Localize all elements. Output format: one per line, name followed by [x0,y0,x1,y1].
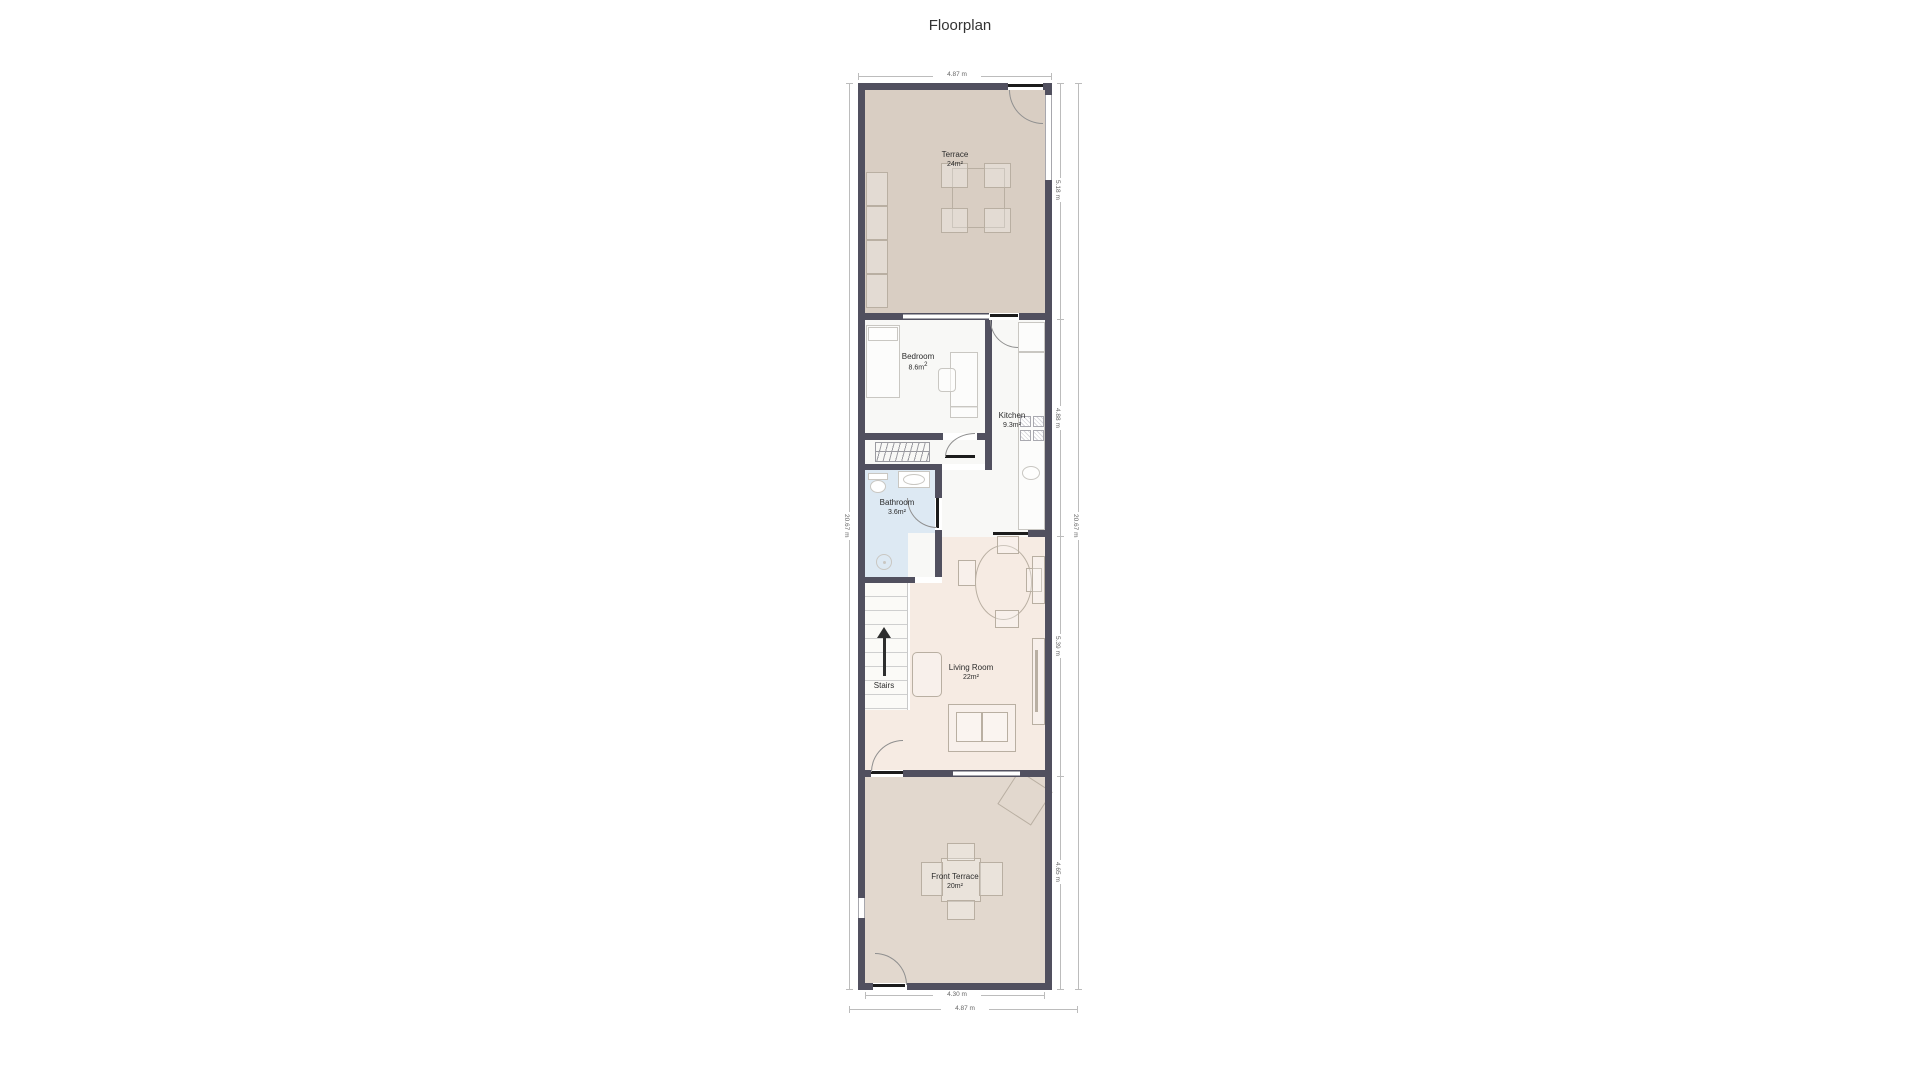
wall-left [858,83,865,990]
dim-tick [1075,989,1082,990]
terrace-chair [984,208,1011,233]
wall-right [1045,83,1052,990]
dining-chair [958,560,976,586]
dim-label-right-seg-2: 5.39 m [1054,634,1061,658]
dim-tick [858,73,859,80]
dim-label-left-height: 20.67 m [843,512,850,540]
room-area: 8.6m2 [868,362,968,372]
stairs-label: Stairs [854,681,914,691]
terrace-sofa-module [866,240,888,274]
terrace-chair [941,208,968,233]
room-name: Stairs [854,681,914,691]
dim-tick [1077,1006,1078,1013]
terrace-sofa-module [866,206,888,240]
front-terrace-label: Front Terrace 20m² [905,872,1005,891]
sofa-cushion [982,712,1008,742]
bed-pillow [868,327,898,341]
room-area: 9.3m² [972,421,1052,430]
dim-tick [1057,989,1064,990]
door-leaf-kitchen-living [993,532,1028,535]
toilet-bowl [870,480,886,493]
dim-tick [1057,776,1064,777]
dim-label-right-seg-0: 5.18 m [1054,178,1061,202]
dim-label-bottom-inner: 4.30 m [933,991,981,998]
terrace-sofa-module [866,274,888,308]
dim-tick [1044,992,1045,999]
dining-table [975,545,1032,620]
dim-tick [1051,73,1052,80]
sideboard [1032,556,1045,604]
bathroom-label: Bathroom 3.6m² [857,498,937,517]
dining-chair [995,610,1019,628]
door-leaf-terrace-kitchen [990,314,1018,317]
room-name: Bedroom [868,352,968,362]
dim-tick [1075,83,1082,84]
dim-tick [865,992,866,999]
dim-label-top-width: 4.87 m [933,71,981,78]
kitchen-sink [1022,466,1040,480]
terrace-label: Terrace 24m² [905,150,1005,169]
room-area: 20m² [905,882,1005,891]
kitchen-counter-top [1018,322,1045,352]
dim-label-right-seg-1: 4.88 m [1054,406,1061,430]
dim-tick [1057,83,1064,84]
room-name: Bathroom [857,498,937,508]
bathroom-sink-basin [903,474,925,485]
sofa-cushion [956,712,982,742]
stove-burner [1020,430,1031,441]
floorplan-page: Floorplan [0,0,1920,1080]
door-leaf-terrace-top [1008,84,1043,87]
room-area: 24m² [905,160,1005,169]
shower-drain-dot [883,561,886,564]
window-terrace-bedroom [903,314,989,319]
room-area: 22m² [921,673,1021,682]
kitchen-label: Kitchen 9.3m² [972,411,1052,430]
tv-unit [1032,638,1045,725]
window-terrace-right [1045,95,1052,180]
front-terrace-chair [947,843,975,861]
kitchen-counter-right [1018,352,1045,530]
front-terrace-chair [947,900,975,920]
stove-burner [1033,430,1044,441]
dim-tick [846,83,853,84]
bedroom-label: Bedroom 8.6m2 [868,352,968,373]
wardrobe-hangers [875,442,930,462]
terrace-sofa-module [866,172,888,206]
dim-tick [1057,536,1064,537]
wardrobe-rail [875,451,930,452]
room-name: Living Room [921,663,1021,673]
wall-closet-bottom [865,464,942,470]
glass-door-living [953,771,1020,776]
hall-floor [908,533,935,577]
stairs-arrow-head [877,627,891,638]
dim-label-bottom-outer: 4.87 m [941,1005,989,1012]
stairs-direction-arrow [883,637,886,676]
room-name: Terrace [905,150,1005,160]
room-name: Kitchen [972,411,1052,421]
page-title: Floorplan [0,17,1920,34]
room-name: Front Terrace [905,872,1005,882]
dim-tick [849,1006,850,1013]
room-area: 3.6m² [857,508,937,517]
living-room-label: Living Room 22m² [921,663,1021,682]
tv-screen [1035,650,1038,712]
window-frontterrace-left [858,898,865,918]
wall-bedroom-kitchen [985,313,992,470]
dim-label-right-total: 20.67 m [1072,512,1079,540]
wall-kitchen-living-stub [1028,530,1045,537]
dim-tick [846,989,853,990]
wall-bathroom-bottom [858,577,915,583]
toilet-tank [868,473,888,480]
dim-label-right-seg-3: 4.65 m [1054,860,1061,884]
dim-tick [1057,319,1064,320]
dining-chair [997,536,1019,554]
